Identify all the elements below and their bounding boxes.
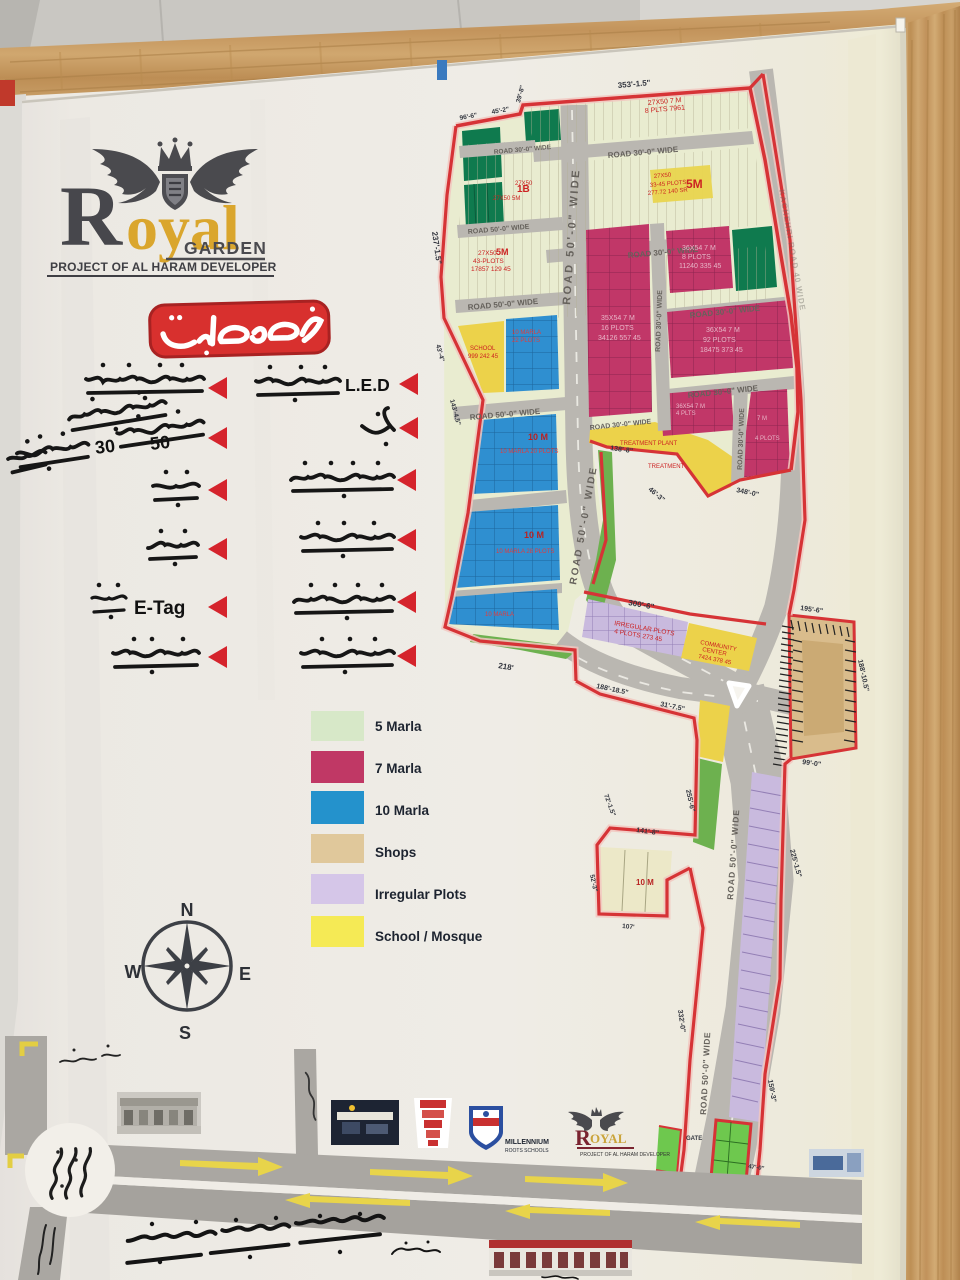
svg-text:E-Tag: E-Tag [134, 598, 185, 619]
svg-text:36X54 7 M: 36X54 7 M [682, 245, 716, 252]
svg-text:TREATMENT: TREATMENT [648, 464, 685, 470]
svg-text:10 MARLA: 10 MARLA [485, 612, 514, 618]
svg-text:5M: 5M [686, 177, 703, 191]
svg-text:R: R [60, 168, 123, 264]
svg-text:4 PLTS: 4 PLTS [676, 411, 696, 417]
svg-text:MILLENNIUM: MILLENNIUM [505, 1139, 549, 1146]
svg-text:Shops: Shops [375, 845, 416, 860]
svg-text:W: W [125, 962, 142, 982]
svg-text:GARDEN: GARDEN [184, 238, 267, 258]
svg-text:43-PLOTS: 43-PLOTS [473, 258, 504, 265]
svg-text:10 M: 10 M [524, 530, 544, 540]
svg-text:10 MARLA 28 PLOTS: 10 MARLA 28 PLOTS [496, 549, 554, 555]
svg-text:GATE: GATE [686, 1136, 702, 1142]
svg-text:999 242 45: 999 242 45 [468, 354, 499, 360]
svg-text:10 MARLA 20 PLOTS: 10 MARLA 20 PLOTS [500, 449, 558, 455]
svg-text:School / Mosque: School / Mosque [375, 929, 483, 944]
svg-text:7 Marla: 7 Marla [375, 761, 422, 776]
svg-text:7 M: 7 M [757, 416, 767, 422]
svg-text:5 Marla: 5 Marla [375, 719, 422, 734]
svg-text:35X54 7 M: 35X54 7 M [601, 315, 635, 322]
svg-text:TREATMENT PLANT: TREATMENT PLANT [620, 441, 677, 447]
svg-text:11240 335 45: 11240 335 45 [679, 263, 721, 270]
svg-text:36X54 7 M: 36X54 7 M [706, 327, 740, 334]
svg-text:5M: 5M [496, 247, 509, 257]
svg-text:10 Marla: 10 Marla [375, 803, 430, 818]
svg-text:8 PLOTS: 8 PLOTS [682, 254, 711, 261]
svg-text:10 M: 10 M [528, 432, 548, 442]
svg-text:4 PLOTS: 4 PLOTS [755, 436, 780, 442]
svg-text:10 MARLA: 10 MARLA [512, 330, 541, 336]
svg-text:S: S [179, 1023, 191, 1043]
svg-text:OYAL: OYAL [590, 1131, 627, 1146]
svg-text:27X50: 27X50 [478, 250, 497, 257]
svg-text:18475 373 45: 18475 373 45 [700, 347, 743, 354]
svg-text:22 PLOTS: 22 PLOTS [512, 338, 540, 344]
svg-text:SCHOOL: SCHOOL [470, 346, 496, 352]
svg-text:107': 107' [622, 923, 635, 931]
svg-text:27X50 5M: 27X50 5M [493, 196, 520, 202]
svg-text:E: E [239, 964, 251, 984]
svg-text:16 PLOTS: 16 PLOTS [601, 325, 634, 332]
svg-text:92 PLOTS: 92 PLOTS [703, 337, 736, 344]
svg-text:17857 129 45: 17857 129 45 [471, 266, 511, 273]
svg-text:Irregular Plots: Irregular Plots [375, 887, 467, 902]
svg-text:L.E.D: L.E.D [345, 375, 390, 395]
svg-text:34126 557 45: 34126 557 45 [598, 335, 641, 342]
svg-text:ROOTS SCHOOLS: ROOTS SCHOOLS [505, 1148, 549, 1154]
svg-text:36X54 7 M: 36X54 7 M [676, 404, 705, 410]
svg-text:N: N [181, 900, 194, 920]
svg-text:1B: 1B [517, 184, 530, 195]
svg-text:PROJECT OF AL HARAM DEVELOPER: PROJECT OF AL HARAM DEVELOPER [50, 260, 277, 274]
svg-text:30: 30 [94, 436, 116, 458]
svg-text:10 M: 10 M [636, 878, 654, 887]
svg-text:50: 50 [149, 432, 171, 454]
svg-text:PROJECT OF AL HARAM DEVELOPER: PROJECT OF AL HARAM DEVELOPER [580, 1152, 670, 1158]
